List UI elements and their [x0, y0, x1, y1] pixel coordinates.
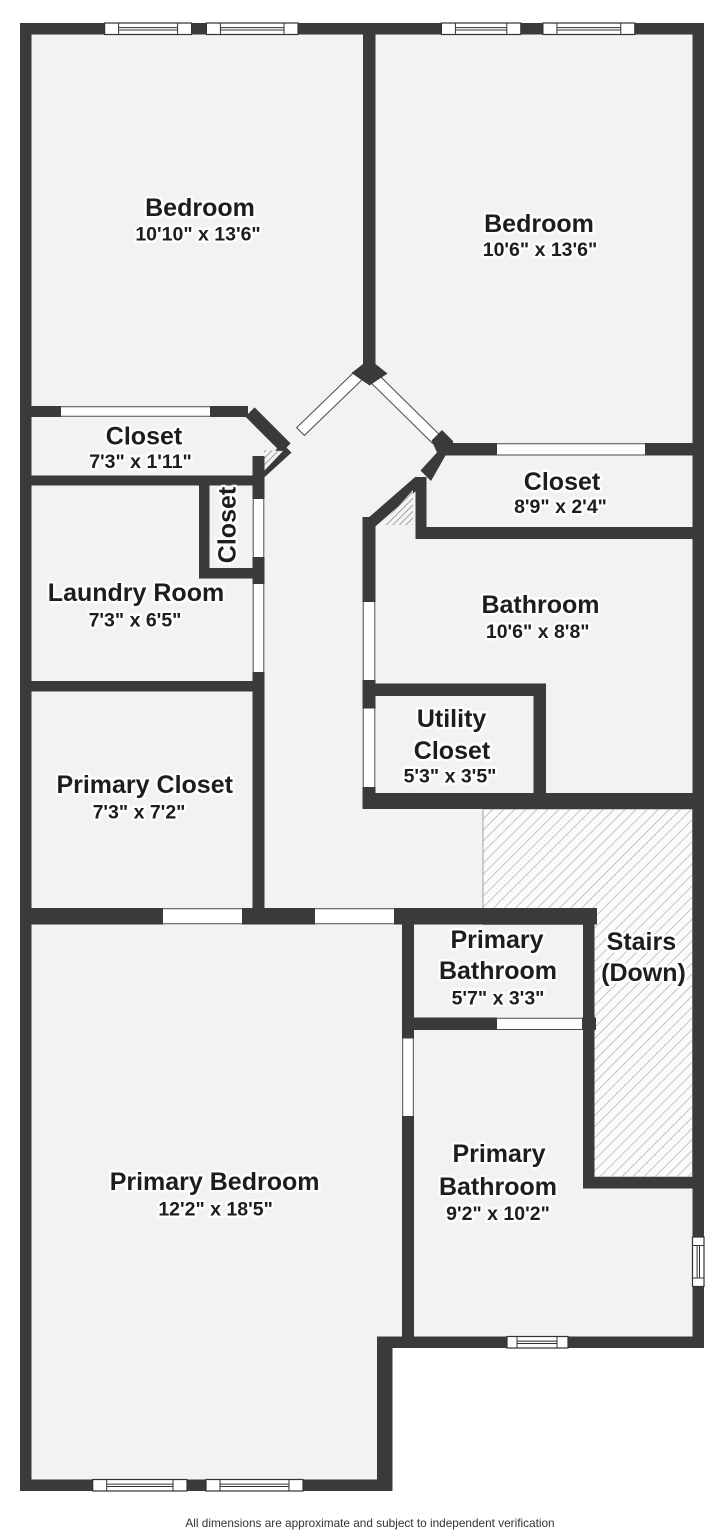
svg-text:Primary Closet: Primary Closet: [56, 771, 233, 799]
svg-text:Bathroom: Bathroom: [481, 591, 599, 619]
svg-text:Closet: Closet: [414, 737, 491, 765]
svg-text:Stairs: Stairs: [607, 928, 676, 956]
svg-text:Bathroom: Bathroom: [439, 957, 557, 985]
svg-text:Bedroom: Bedroom: [484, 210, 594, 238]
svg-text:7'3" x 7'2": 7'3" x 7'2": [93, 801, 186, 823]
svg-text:9'2" x 10'2": 9'2" x 10'2": [446, 1203, 550, 1225]
svg-text:Closet: Closet: [213, 486, 241, 563]
svg-text:10'6" x 8'8": 10'6" x 8'8": [486, 621, 590, 643]
svg-text:Primary: Primary: [450, 926, 543, 954]
svg-text:7'3" x 6'5": 7'3" x 6'5": [89, 609, 182, 631]
svg-text:Bathroom: Bathroom: [439, 1173, 557, 1201]
svg-text:5'3" x 3'5": 5'3" x 3'5": [404, 765, 497, 787]
svg-text:Primary: Primary: [452, 1140, 545, 1168]
svg-text:5'7" x 3'3": 5'7" x 3'3": [452, 987, 545, 1009]
svg-text:Laundry Room: Laundry Room: [48, 579, 224, 607]
svg-text:Bedroom: Bedroom: [145, 194, 255, 222]
svg-text:All dimensions are approximate: All dimensions are approximate and subje…: [185, 1516, 554, 1530]
svg-text:10'10" x 13'6": 10'10" x 13'6": [135, 223, 260, 245]
svg-text:8'9" x 2'4": 8'9" x 2'4": [514, 496, 607, 518]
svg-text:Closet: Closet: [106, 422, 183, 450]
svg-text:10'6" x 13'6": 10'6" x 13'6": [483, 239, 598, 261]
svg-text:(Down): (Down): [601, 959, 686, 987]
svg-text:12'2" x 18'5": 12'2" x 18'5": [158, 1198, 273, 1220]
svg-text:Closet: Closet: [524, 468, 601, 496]
svg-text:7'3" x 1'11": 7'3" x 1'11": [89, 451, 192, 473]
svg-text:Primary Bedroom: Primary Bedroom: [110, 1168, 320, 1196]
svg-text:Utility: Utility: [417, 705, 487, 733]
